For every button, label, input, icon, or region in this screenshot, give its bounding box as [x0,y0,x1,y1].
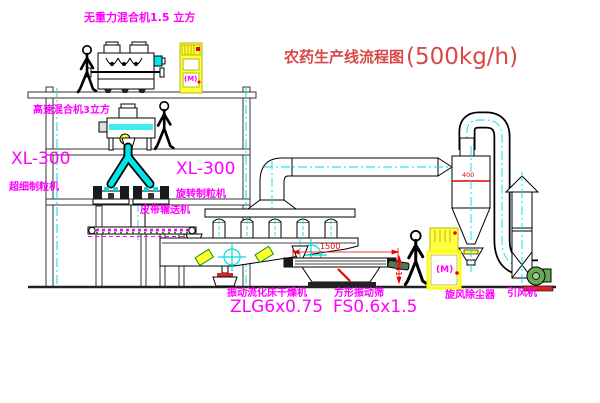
label-granulator-left-name: 超细制粒机 [9,183,59,193]
person-icon [78,46,96,92]
diagram-title-capacity: (500kg/h) [406,44,518,70]
label-fan: 引风机 [507,289,537,299]
label-granulator-right-model: XL-300 [176,161,235,178]
label-granulator-left-model: XL-300 [11,151,70,168]
diagram-title-cn: 农药生产线流程图 [284,46,404,70]
label-granulator-right-name: 旋转制粒机 [176,190,226,200]
label-sieve-model: FS0.6x1.5 [333,299,417,316]
motor-symbol-right-cabinet: (M) [436,266,453,275]
granulator-left [93,186,129,204]
dim-sieve-width: 1500 [320,243,340,251]
label-cyclone: 旋风除尘器 [445,291,495,301]
label-high-speed-mixer: 高速混合机3立方 [33,106,110,116]
label-belt-conveyor: 皮带输送机 [140,206,190,216]
dim-cyclone: 400 [462,172,474,179]
motor-symbol-top-cabinet: (M) [184,76,197,83]
label-gravity-free-mixer: 无重力混合机1.5 立方 [84,12,195,23]
granulator-right [133,186,169,204]
label-dryer-model: ZLG6x0.75 [230,299,323,316]
diagram-title: 农药生产线流程图 (500kg/h) [284,44,518,70]
gravity-free-mixer [87,42,165,93]
process-flow-diagram-page: 农药生产线流程图 (500kg/h) 无重力混合机1.5 立方 高速混合机3立方… [0,0,600,403]
person-icon [405,231,426,285]
control-cabinet-right [428,228,460,288]
control-cabinet-top [180,43,202,93]
dim-sieve-height: 541 [394,261,402,276]
person-icon [155,102,173,149]
exhaust-duct [248,158,458,212]
